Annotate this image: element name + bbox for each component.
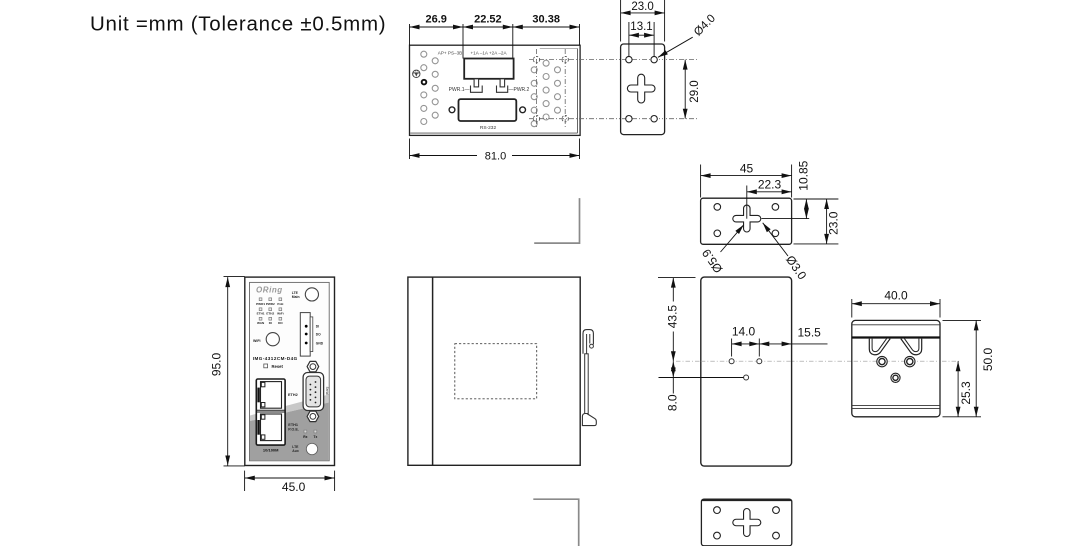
svg-text:43.5: 43.5	[665, 305, 679, 329]
svg-text:45: 45	[740, 162, 754, 176]
svg-text:8.0: 8.0	[665, 394, 679, 411]
svg-text:Aux: Aux	[292, 449, 299, 453]
svg-text:DO: DO	[278, 321, 283, 325]
svg-text:IMG-4312CM-D4G: IMG-4312CM-D4G	[253, 356, 298, 361]
svg-text:PoE: PoE	[277, 302, 283, 306]
svg-text:Tx: Tx	[313, 435, 317, 439]
svg-text:30.38: 30.38	[532, 14, 560, 26]
svg-text:22.52: 22.52	[474, 14, 502, 26]
svg-text:ETH2: ETH2	[266, 312, 274, 316]
svg-text:DO: DO	[316, 332, 321, 336]
svg-text:PWR2: PWR2	[266, 302, 275, 306]
svg-text:50.0: 50.0	[981, 347, 995, 371]
svg-text:WAN: WAN	[257, 321, 265, 325]
svg-text:WiFi: WiFi	[253, 339, 261, 343]
svg-text:ETH2: ETH2	[288, 393, 298, 397]
svg-text:Serial: Serial	[325, 387, 329, 395]
svg-text:ETH1: ETH1	[257, 312, 265, 316]
svg-text:+1A –1A +2A –2A: +1A –1A +2A –2A	[470, 51, 507, 56]
svg-text:45.0: 45.0	[282, 480, 306, 494]
svg-text:26.9: 26.9	[425, 14, 446, 26]
svg-text:Ø4.0: Ø4.0	[692, 12, 718, 38]
svg-text:10/100M: 10/100M	[263, 447, 279, 452]
svg-text:PWR.1—: PWR.1—	[449, 87, 470, 93]
svg-text:14.0: 14.0	[732, 325, 756, 339]
svg-text:GND: GND	[316, 341, 324, 345]
svg-text:Main: Main	[292, 295, 300, 299]
svg-text:PWR1: PWR1	[256, 302, 265, 306]
svg-text:Reset: Reset	[272, 364, 284, 369]
svg-text:40.0: 40.0	[884, 289, 908, 303]
svg-text:WiFi: WiFi	[277, 312, 284, 316]
svg-text:Unit =mm (Tolerance ±0.5mm): Unit =mm (Tolerance ±0.5mm)	[90, 13, 386, 36]
svg-text:Rx: Rx	[303, 435, 307, 439]
svg-text:ETH1: ETH1	[288, 423, 298, 427]
svg-text:DI: DI	[316, 325, 319, 329]
svg-text:—PWR.2: —PWR.2	[509, 87, 530, 93]
svg-text:95.0: 95.0	[210, 352, 224, 376]
svg-text:RS-232: RS-232	[480, 125, 497, 131]
svg-text:22.3: 22.3	[758, 178, 782, 192]
svg-text:DI: DI	[269, 321, 272, 325]
svg-text:15.5: 15.5	[798, 326, 822, 340]
svg-text:25.3: 25.3	[959, 381, 973, 405]
svg-text:10.85: 10.85	[796, 160, 810, 190]
svg-text:13.1: 13.1	[630, 21, 652, 33]
svg-text:29.0: 29.0	[689, 80, 701, 102]
svg-text:P.O.E.: P.O.E.	[288, 428, 299, 432]
svg-text:81.0: 81.0	[485, 151, 506, 163]
svg-text:23.0: 23.0	[827, 211, 841, 235]
svg-text:AP+ PS–3B: AP+ PS–3B	[438, 51, 462, 56]
svg-text:ORing: ORing	[256, 285, 283, 294]
svg-text:23.0: 23.0	[631, 1, 653, 13]
